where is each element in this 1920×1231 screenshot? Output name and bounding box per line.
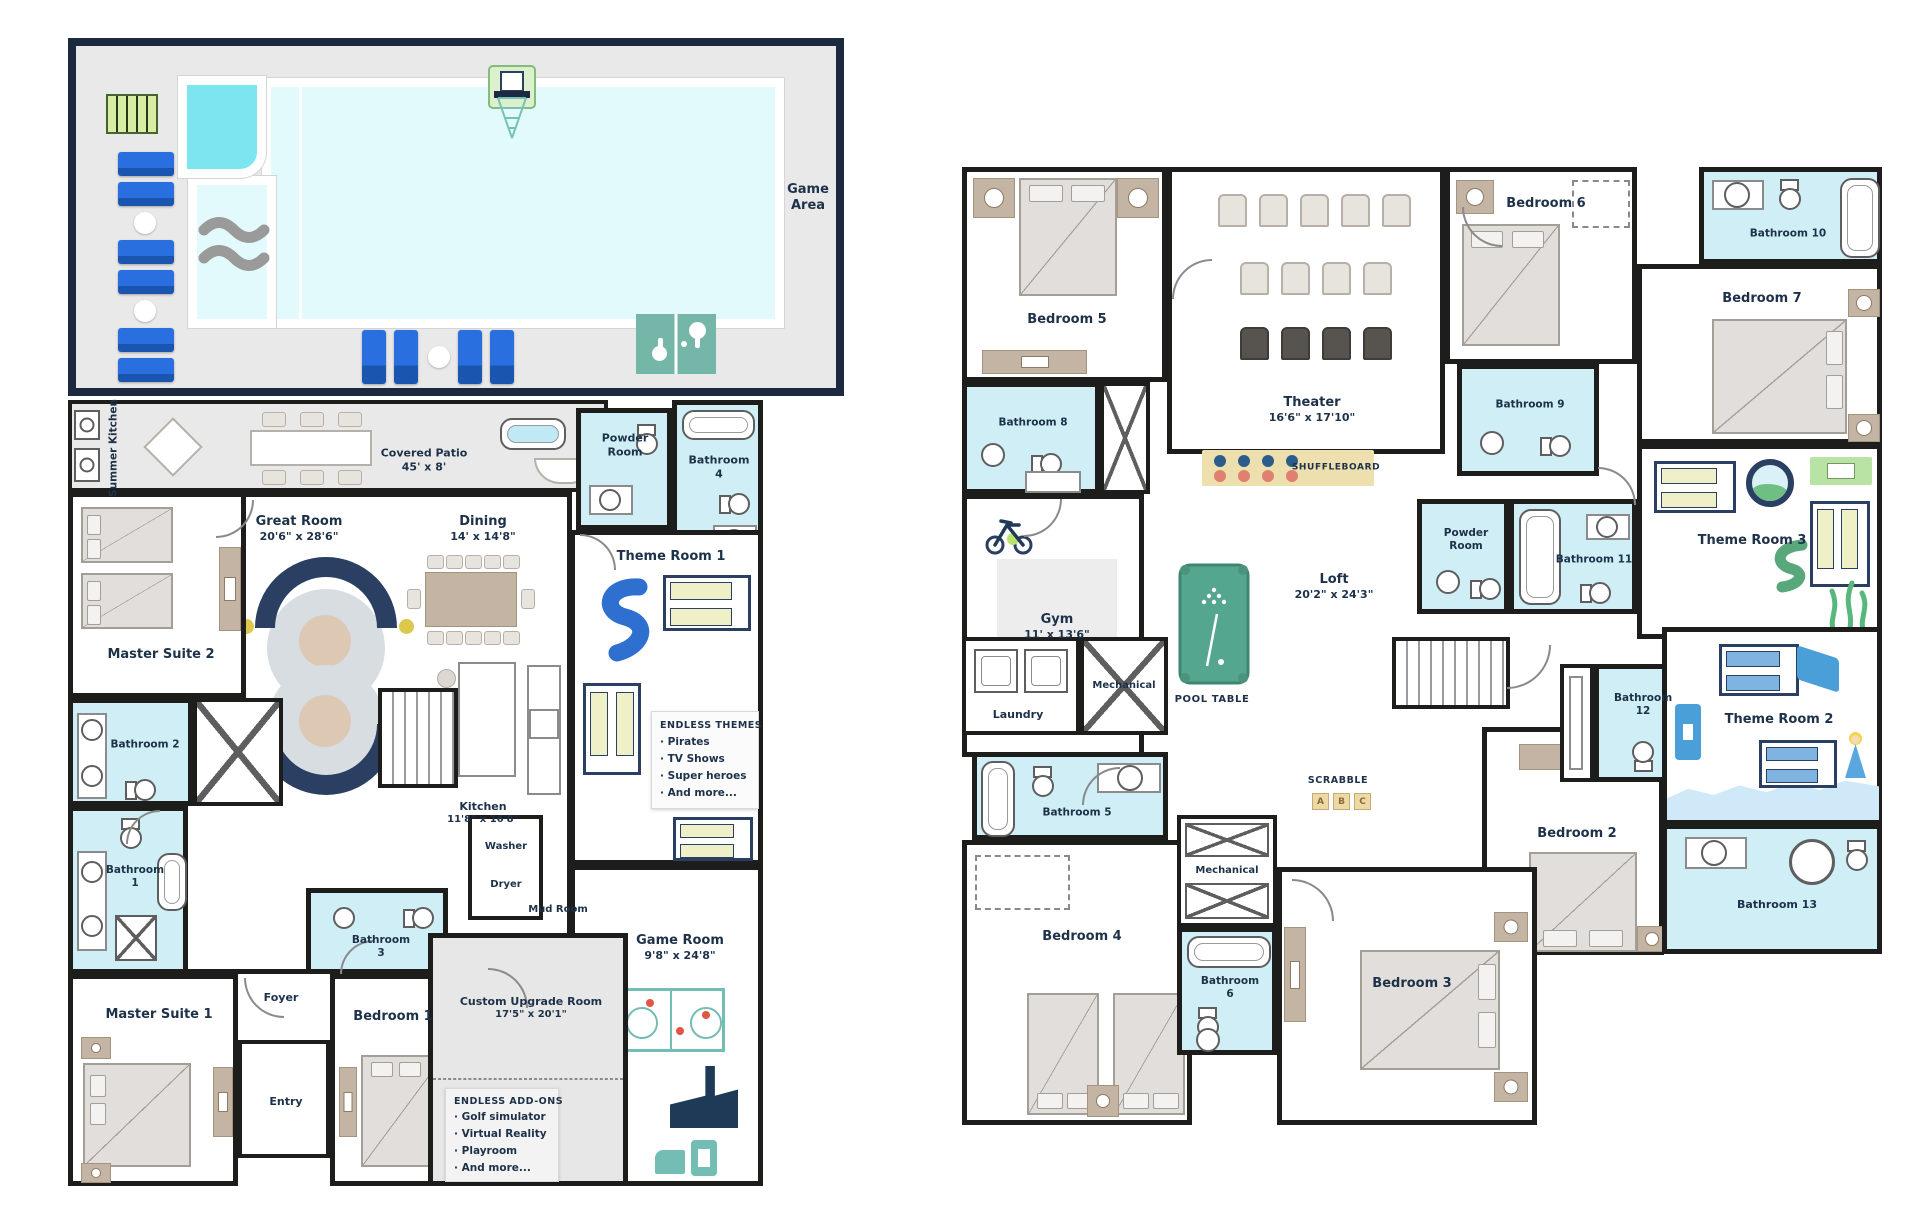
master-suite-2-text: Master Suite 2 xyxy=(107,647,214,662)
label-summer-kitchen: Summer Kitchen xyxy=(107,399,120,497)
dryer-text: Dryer xyxy=(490,879,521,890)
covered-patio-dims: 45' x 8' xyxy=(381,460,468,474)
room-powder-floor2: Powder Room xyxy=(1417,499,1509,614)
endless-themes-item: · Pirates xyxy=(660,736,710,748)
endless-addons-item: · Golf simulator xyxy=(454,1111,546,1123)
label-mechanical-upper: Mechanical xyxy=(1092,680,1155,693)
label-theme-room-3: Theme Room 3 xyxy=(1698,533,1807,549)
label-master-suite-2: Master Suite 2 xyxy=(107,647,214,663)
powder-room-f1-text: Powder Room xyxy=(602,431,649,458)
dining-chair-icon xyxy=(407,589,421,609)
theme-room-1-text: Theme Room 1 xyxy=(617,549,726,564)
optional-wall-dashed xyxy=(433,1078,623,1080)
label-bathroom-13: Bathroom 13 xyxy=(1737,898,1817,912)
label-foyer: Foyer xyxy=(264,991,299,1005)
bunk-bed-icon xyxy=(663,575,751,631)
label-bathroom-2: Bathroom 2 xyxy=(110,738,179,751)
room-bedroom-7: Bedroom 7 xyxy=(1637,264,1882,444)
bed-icon xyxy=(83,1063,191,1167)
theater-seat-icon xyxy=(1240,327,1269,360)
room-closet-tall xyxy=(1560,664,1594,782)
side-table-icon xyxy=(428,346,450,368)
dining-chair-icon xyxy=(521,589,535,609)
toilet-icon xyxy=(719,493,749,513)
dryer-machine-icon xyxy=(1024,649,1068,693)
dining-chair-icon xyxy=(465,631,482,645)
toilet-icon xyxy=(1781,179,1801,209)
air-hockey-table-icon xyxy=(615,988,725,1052)
endless-themes-title: ENDLESS THEMES xyxy=(660,720,762,731)
endless-addons-item: · And more... xyxy=(454,1162,531,1174)
toilet-icon xyxy=(1540,435,1570,455)
nightstand-icon xyxy=(1117,178,1159,218)
nightstand-icon xyxy=(1494,912,1528,942)
bathroom-3-text: Bathroom 3 xyxy=(352,934,410,959)
label-washer: Washer xyxy=(485,841,527,854)
nightstand-icon xyxy=(81,1037,111,1059)
bunk-bed-icon xyxy=(1719,644,1799,696)
sink-icon xyxy=(81,719,103,741)
kitchen-island-icon xyxy=(458,662,516,777)
dining-chair-icon xyxy=(465,555,482,569)
dining-dims: 14' x 14'8" xyxy=(450,530,516,544)
label-bedroom-5: Bedroom 5 xyxy=(1027,312,1106,328)
room-bathroom-11: Bathroom 11 xyxy=(1509,499,1637,614)
label-bedroom-2: Bedroom 2 xyxy=(1537,826,1616,842)
basketball-arcade-icon xyxy=(670,1066,738,1128)
theme-room-3-text: Theme Room 3 xyxy=(1698,533,1807,548)
patio-chair-icon xyxy=(262,412,286,427)
theater-row xyxy=(1218,194,1411,227)
label-powder-room-f2: Powder Room xyxy=(1437,527,1495,553)
room-bedroom-6: Bedroom 6 xyxy=(1445,167,1637,364)
closet-dashed xyxy=(975,855,1070,910)
bathtub-icon xyxy=(981,761,1015,837)
label-entry: Entry xyxy=(269,1095,302,1109)
room-theme-room-2: Theme Room 2 xyxy=(1662,627,1882,824)
theater-seat-icon xyxy=(1259,194,1288,227)
dining-text: Dining xyxy=(459,514,507,529)
mechanical-x xyxy=(1185,883,1269,919)
wardrobe-icon xyxy=(1284,927,1306,1022)
loft-text: Loft xyxy=(1319,572,1348,587)
room-bathroom-13: Bathroom 13 xyxy=(1662,824,1882,954)
lounge-chair-icon xyxy=(118,270,174,294)
room-master-suite-1: Master Suite 1 xyxy=(68,974,238,1186)
twin-bed-icon xyxy=(1113,993,1185,1115)
bed-icon xyxy=(1712,319,1847,434)
covered-patio-text: Covered Patio xyxy=(381,446,468,459)
endless-themes-item: · And more... xyxy=(660,787,737,799)
surfboard-panel-icon xyxy=(1675,704,1701,760)
first-floor-plan: Summer Kitchen Covered Patio 45' x 8' Gr… xyxy=(68,400,763,1186)
patio-table-icon xyxy=(143,417,202,476)
toilet-icon xyxy=(403,907,433,927)
shuffleboard-text: SHUFFLEBOARD xyxy=(1292,462,1380,472)
sink-icon xyxy=(1117,765,1143,791)
pool-lane-line xyxy=(299,87,302,319)
label-bedroom-7: Bedroom 7 xyxy=(1722,291,1801,307)
patio-chair-icon xyxy=(262,470,286,485)
sink-icon xyxy=(1724,182,1750,208)
toilet-icon xyxy=(1034,766,1054,796)
sink-icon xyxy=(1596,516,1618,538)
mud-room-text: Mud Room xyxy=(528,904,588,915)
room-bathroom-2: Bathroom 2 xyxy=(68,698,193,806)
room-theme-room-3: Theme Room 3 xyxy=(1637,444,1882,639)
lounge-chair-icon xyxy=(118,328,174,352)
sink-icon xyxy=(81,765,103,787)
endless-themes-item: · TV Shows xyxy=(660,753,725,765)
label-theme-room-1: Theme Room 1 xyxy=(617,549,726,565)
endless-addons-item: · Virtual Reality xyxy=(454,1128,547,1140)
room-bedroom-5: Bedroom 5 xyxy=(962,167,1167,382)
scrabble-tile-icon: A xyxy=(1312,793,1329,810)
nightstand-icon xyxy=(973,178,1015,218)
label-gym: Gym 11' x 13'6" xyxy=(1024,612,1090,642)
powder-room-f2-text: Powder Room xyxy=(1444,527,1488,552)
bathroom-8-text: Bathroom 8 xyxy=(998,416,1067,428)
bed-icon xyxy=(1462,224,1560,346)
endless-themes-box: ENDLESS THEMES · Pirates · TV Shows · Su… xyxy=(651,711,759,809)
bathroom-9-text: Bathroom 9 xyxy=(1495,398,1564,410)
theater-row xyxy=(1240,327,1392,360)
dining-chair-icon xyxy=(484,631,501,645)
mechanical-x xyxy=(1185,823,1269,857)
dining-chair-icon xyxy=(427,555,444,569)
bunk-bed-icon xyxy=(1759,740,1837,788)
bedroom-1-text: Bedroom 1 xyxy=(353,1009,432,1024)
closet-icon xyxy=(193,698,283,806)
patio-tub-icon xyxy=(500,418,566,450)
label-scrabble: SCRABBLE xyxy=(1308,775,1368,787)
vanity-icon xyxy=(1025,471,1081,493)
label-covered-patio: Covered Patio 45' x 8' xyxy=(381,446,468,474)
master-suite-1-text: Master Suite 1 xyxy=(105,1007,212,1022)
toilet-icon xyxy=(1470,578,1500,598)
great-room-text: Great Room xyxy=(256,514,343,529)
room-entry: Entry xyxy=(238,1040,330,1158)
side-table-icon xyxy=(134,212,156,234)
lounge-chair-icon xyxy=(458,330,482,384)
label-dining: Dining 14' x 14'8" xyxy=(450,514,516,544)
stool-icon xyxy=(437,669,456,688)
room-bathroom-3: Bathroom 3 xyxy=(306,888,448,974)
basketball-hoop-icon xyxy=(484,64,540,144)
room-covered-patio: Summer Kitchen Covered Patio 45' x 8' xyxy=(68,400,608,492)
room-powder-floor1: Powder Room xyxy=(576,408,672,530)
washing-machine-icon xyxy=(974,649,1018,693)
label-mechanical-lower: Mechanical xyxy=(1195,865,1258,878)
theater-seat-icon xyxy=(1341,194,1370,227)
sink-icon xyxy=(1701,840,1727,866)
game-room-text: Game Room xyxy=(636,933,724,948)
elsa-figure-icon xyxy=(1845,732,1866,778)
bathroom-5-f2-text: Bathroom 5 xyxy=(1042,806,1111,818)
nightstand-icon xyxy=(1848,414,1880,442)
ottoman-icon xyxy=(399,619,414,634)
sink-icon xyxy=(81,861,103,883)
label-game-room: Game Room 9'8" x 24'8" xyxy=(636,933,724,963)
endless-addons-title: ENDLESS ADD-ONS xyxy=(454,1096,563,1107)
nightstand-icon xyxy=(1494,1072,1528,1102)
foosball-table-icon xyxy=(106,94,158,134)
shelf-icon xyxy=(1569,676,1583,770)
label-bathroom-5-f2: Bathroom 5 xyxy=(1042,806,1111,819)
theater-seat-icon xyxy=(1322,262,1351,295)
label-shuffleboard: SHUFFLEBOARD xyxy=(1292,462,1380,473)
bathtub-icon xyxy=(1187,936,1271,968)
label-mud-room: Mud Room xyxy=(528,904,588,917)
scrabble-tile-icon: B xyxy=(1333,793,1350,810)
bunk-bed-icon xyxy=(583,683,641,775)
toilet-icon xyxy=(1031,453,1061,473)
grill-icon xyxy=(74,410,100,440)
scrabble-text: SCRABBLE xyxy=(1308,775,1368,786)
label-dryer: Dryer xyxy=(490,879,521,892)
door-arc-icon xyxy=(1507,645,1551,689)
patio-chair-icon xyxy=(338,412,362,427)
theater-text: Theater xyxy=(1283,395,1340,410)
label-powder-room-f1: Powder Room xyxy=(595,431,655,459)
washer-text: Washer xyxy=(485,841,527,852)
dining-table-icon xyxy=(425,572,517,627)
round-machine-icon xyxy=(1196,1028,1220,1052)
label-kitchen: Kitchen 11'8" x 16'8" xyxy=(447,800,519,826)
label-pool-table: POOL TABLE xyxy=(1175,694,1250,707)
second-floor-plan: Bedroom 5 Bathroom 8 Theater xyxy=(962,167,1882,1125)
bedroom-4-text: Bedroom 4 xyxy=(1042,929,1121,944)
stairs-icon xyxy=(378,688,458,788)
scrabble-tile-icon: C xyxy=(1354,793,1371,810)
lounge-chair-icon xyxy=(362,330,386,384)
summer-kitchen-text: Summer Kitchen xyxy=(107,399,119,497)
sink-icon xyxy=(981,443,1005,467)
theater-seat-icon xyxy=(1281,327,1310,360)
dining-chair-icon xyxy=(503,555,520,569)
closet-icon xyxy=(1100,382,1150,494)
room-bathroom-10: Bathroom 10 xyxy=(1699,167,1882,264)
kitchen-dims: 11'8" x 16'8" xyxy=(447,814,519,827)
room-bathroom-5-f2: Bathroom 5 xyxy=(972,752,1168,840)
label-great-room: Great Room 20'6" x 28'6" xyxy=(256,514,343,544)
sink-icon xyxy=(1436,570,1460,594)
entry-text: Entry xyxy=(269,1095,302,1108)
bunk-bed-icon xyxy=(673,817,753,861)
coffee-table-icon xyxy=(299,615,351,667)
theater-seat-icon xyxy=(1363,262,1392,295)
ice-slide-icon xyxy=(1797,645,1839,693)
theater-row xyxy=(1240,262,1392,295)
room-bedroom-4: Bedroom 4 xyxy=(962,840,1192,1125)
toilet-icon xyxy=(1580,582,1610,602)
sink-icon xyxy=(1480,431,1504,455)
pool-game-area: Game Area xyxy=(68,38,844,396)
arcade-machine-icon xyxy=(691,1140,717,1176)
shower-icon xyxy=(115,915,157,961)
toilet-icon xyxy=(1848,840,1868,870)
theater-seat-icon xyxy=(1382,194,1411,227)
bathtub-icon xyxy=(1840,178,1880,258)
lounge-chair-icon xyxy=(118,240,174,264)
bedroom-7-text: Bedroom 7 xyxy=(1722,291,1801,306)
label-bedroom-4: Bedroom 4 xyxy=(1042,929,1121,945)
theater-seat-icon xyxy=(1240,262,1269,295)
bed-icon xyxy=(1360,950,1500,1070)
bathroom-12-text: Bathroom 12 xyxy=(1614,692,1672,717)
label-laundry: Laundry xyxy=(993,708,1044,722)
label-master-suite-1: Master Suite 1 xyxy=(105,1007,212,1023)
desk-icon xyxy=(1810,457,1872,485)
side-table-icon xyxy=(134,300,156,322)
theater-seat-icon xyxy=(1322,327,1351,360)
label-bedroom-6: Bedroom 6 xyxy=(1506,196,1585,212)
room-custom-upgrade: Custom Upgrade Room 17'5" x 20'1" ENDLES… xyxy=(428,933,628,1186)
label-theater: Theater 16'6" x 17'10" xyxy=(1269,395,1356,425)
bathroom-4-text: Bathroom 4 xyxy=(689,453,750,480)
theme-room-2-text: Theme Room 2 xyxy=(1725,712,1834,727)
bathroom-2-text: Bathroom 2 xyxy=(110,738,179,750)
mechanical-lower-text: Mechanical xyxy=(1195,865,1258,876)
room-bathroom-9: Bathroom 9 xyxy=(1457,364,1599,476)
pool-table-text: POOL TABLE xyxy=(1175,694,1250,705)
gym-text: Gym xyxy=(1041,612,1074,627)
bed-icon xyxy=(81,573,173,629)
bedroom-6-text: Bedroom 6 xyxy=(1506,196,1585,211)
label-bedroom-1: Bedroom 1 xyxy=(353,1009,432,1025)
label-bathroom-6: Bathroom 6 xyxy=(1199,975,1261,1001)
grill-icon xyxy=(74,448,100,482)
lounge-chair-icon xyxy=(490,330,514,384)
nightstand-icon xyxy=(81,1163,111,1183)
label-bathroom-4: Bathroom 4 xyxy=(688,453,750,481)
label-loft: Loft 20'2" x 24'3" xyxy=(1295,572,1374,602)
floorplan-canvas: Game Area Summer Kitchen Covered Patio 4… xyxy=(0,0,1920,1231)
label-bathroom-10: Bathroom 10 xyxy=(1750,227,1826,240)
dining-chair-icon xyxy=(427,631,444,645)
label-bathroom-9: Bathroom 9 xyxy=(1495,398,1564,411)
patio-chair-icon xyxy=(300,470,324,485)
room-bathroom-6: Bathroom 6 xyxy=(1177,927,1277,1055)
porthole-icon xyxy=(1746,459,1794,507)
mechanical-upper-text: Mechanical xyxy=(1092,680,1155,691)
water-slide-waves-icon xyxy=(196,212,270,278)
ping-pong-table-icon xyxy=(636,314,716,374)
pool-table-icon xyxy=(1177,562,1251,686)
theater-seat-icon xyxy=(1218,194,1247,227)
bathroom-11-text: Bathroom 11 xyxy=(1556,553,1632,565)
laundry-text: Laundry xyxy=(993,708,1044,721)
bedroom-5-text: Bedroom 5 xyxy=(1027,312,1106,327)
theater-seat-icon xyxy=(1300,194,1329,227)
room-bathroom-8: Bathroom 8 xyxy=(962,382,1100,494)
dresser-icon xyxy=(213,1067,233,1137)
lounge-chair-icon xyxy=(118,358,174,382)
sink-icon xyxy=(599,489,621,511)
custom-upgrade-room-dims: 17'5" x 20'1" xyxy=(460,1009,602,1022)
kitchen-text: Kitchen xyxy=(459,800,506,813)
dining-chair-icon xyxy=(503,631,520,645)
stairs-icon xyxy=(1392,637,1510,709)
room-theme-room-1: Theme Room 1 ENDLESS THEMES · Pirates · … xyxy=(570,530,763,865)
nightstand-icon xyxy=(1087,1085,1119,1117)
nightstand-icon xyxy=(1848,289,1880,317)
door-arc-icon xyxy=(1598,467,1636,505)
dresser-icon xyxy=(982,350,1087,374)
label-bathroom-8: Bathroom 8 xyxy=(998,416,1067,429)
endless-addons-box: ENDLESS ADD-ONS · Golf simulator · Virtu… xyxy=(445,1088,559,1182)
dresser-icon xyxy=(339,1067,357,1137)
room-laundry-f2: Laundry xyxy=(962,637,1080,735)
custom-upgrade-room-text: Custom Upgrade Room xyxy=(460,995,602,1008)
game-room-dims: 9'8" x 24'8" xyxy=(636,949,724,963)
bed-icon xyxy=(1529,852,1637,952)
bathroom-10-text: Bathroom 10 xyxy=(1750,227,1826,239)
bedroom-3-text: Bedroom 3 xyxy=(1372,976,1451,991)
bathtub-icon xyxy=(682,410,755,440)
room-theater: Theater 16'6" x 17'10" xyxy=(1167,167,1445,454)
loft-dims: 20'2" x 24'3" xyxy=(1295,588,1374,602)
bed-icon xyxy=(81,507,173,563)
theater-seat-icon xyxy=(1363,327,1392,360)
gaming-chair-icon xyxy=(655,1150,685,1174)
label-bathroom-3: Bathroom 3 xyxy=(348,934,414,960)
dining-chair-icon xyxy=(484,555,501,569)
round-tub-icon xyxy=(1789,839,1835,885)
toilet-icon xyxy=(1632,742,1652,772)
dresser-icon xyxy=(219,547,241,631)
label-custom-upgrade-room: Custom Upgrade Room 17'5" x 20'1" xyxy=(460,995,602,1021)
sink-icon xyxy=(333,907,355,929)
lounge-chair-icon xyxy=(118,182,174,206)
patio-long-table-icon xyxy=(250,430,372,466)
range-icon xyxy=(529,709,559,739)
label-bathroom-1: Bathroom 1 xyxy=(105,864,165,890)
shuffleboard-icon: SHUFFLEBOARD xyxy=(1202,450,1374,486)
endless-addons-item: · Playroom xyxy=(454,1145,517,1157)
foyer-text: Foyer xyxy=(264,991,299,1004)
label-theme-room-2: Theme Room 2 xyxy=(1725,712,1834,728)
dining-chair-icon xyxy=(446,555,463,569)
theater-seat-icon xyxy=(1281,262,1310,295)
room-mechanical-lower: Mechanical xyxy=(1177,815,1277,927)
gym-dims: 11' x 13'6" xyxy=(1024,628,1090,642)
patio-chair-icon xyxy=(338,470,362,485)
bathroom-6-text: Bathroom 6 xyxy=(1201,975,1259,1000)
bathroom-1-text: Bathroom 1 xyxy=(106,864,164,889)
dining-chair-icon xyxy=(446,631,463,645)
slide-icon xyxy=(585,577,659,663)
lounge-chair-icon xyxy=(394,330,418,384)
bunk-bed-icon xyxy=(1654,461,1736,513)
lounge-chair-icon xyxy=(118,152,174,176)
toilet-icon xyxy=(125,779,155,799)
endless-themes-item: · Super heroes xyxy=(660,770,747,782)
label-bathroom-12: Bathroom 12 xyxy=(1614,692,1672,718)
bathtub-icon xyxy=(1519,509,1561,605)
spa-icon xyxy=(178,76,266,178)
bed-icon xyxy=(1019,178,1117,296)
game-area-label: Game Area xyxy=(784,182,832,215)
theater-dims: 16'6" x 17'10" xyxy=(1269,411,1356,425)
label-bedroom-3: Bedroom 3 xyxy=(1372,976,1451,992)
patio-chair-icon xyxy=(300,412,324,427)
game-area-label-text: Game Area xyxy=(787,182,829,213)
bathroom-13-text: Bathroom 13 xyxy=(1737,898,1817,911)
bedroom-2-text: Bedroom 2 xyxy=(1537,826,1616,841)
label-bathroom-11: Bathroom 11 xyxy=(1556,553,1632,566)
sink-icon xyxy=(81,915,103,937)
